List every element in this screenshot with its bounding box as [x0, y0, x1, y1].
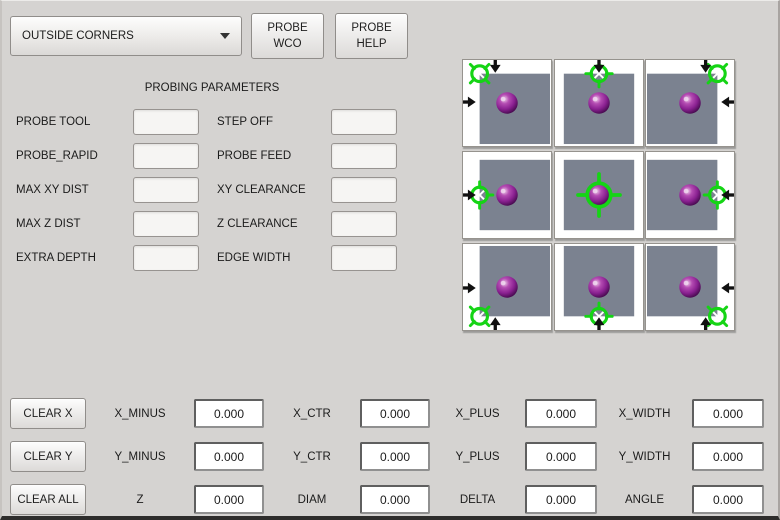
result-value-y-ctr: 0.000 — [360, 442, 430, 471]
probe-cell-bottom-left[interactable] — [462, 243, 552, 331]
param-label-edge-width: EDGE WIDTH — [199, 252, 331, 264]
result-label-delta: DELTA — [430, 494, 525, 506]
result-value-y-plus: 0.000 — [525, 442, 597, 471]
result-value-delta: 0.000 — [525, 485, 597, 514]
probe-grid — [462, 59, 738, 391]
result-label-y-ctr: Y_CTR — [264, 451, 360, 463]
results-grid: CLEAR X X_MINUS 0.000 X_CTR 0.000 X_PLUS… — [10, 398, 764, 515]
result-label-diam: DIAM — [264, 494, 360, 506]
param-label-probe-tool: PROBE TOOL — [16, 116, 133, 128]
param-label-z-clearance: Z CLEARANCE — [199, 218, 331, 230]
probe-wco-button[interactable]: PROBE WCO — [251, 13, 324, 59]
result-label-x-ctr: X_CTR — [264, 408, 360, 420]
result-label-x-plus: X_PLUS — [430, 408, 525, 420]
probe-cell-top-center[interactable] — [554, 59, 644, 147]
probe-cell-center[interactable] — [554, 151, 644, 239]
probe-help-button[interactable]: PROBE HELP — [335, 13, 408, 59]
param-label-max-xy-dist: MAX XY DIST — [16, 184, 133, 196]
param-label-max-z-dist: MAX Z DIST — [16, 218, 133, 230]
mode-select[interactable]: OUTSIDE CORNERS — [10, 16, 242, 56]
param-input-z-clearance[interactable] — [331, 211, 397, 237]
clear-x-button[interactable]: CLEAR X — [10, 398, 86, 429]
result-label-z: Z — [86, 494, 194, 506]
result-value-x-minus: 0.000 — [194, 399, 264, 428]
param-input-probe-tool[interactable] — [133, 109, 199, 135]
param-input-edge-width[interactable] — [331, 245, 397, 271]
result-label-y-minus: Y_MINUS — [86, 451, 194, 463]
param-label-probe-rapid: PROBE_RAPID — [16, 150, 133, 162]
result-value-diam: 0.000 — [360, 485, 430, 514]
result-value-x-width: 0.000 — [692, 399, 764, 428]
result-label-y-plus: Y_PLUS — [430, 451, 525, 463]
probe-cell-middle-left[interactable] — [462, 151, 552, 239]
param-input-xy-clearance[interactable] — [331, 177, 397, 203]
clear-y-button[interactable]: CLEAR Y — [10, 441, 86, 472]
clear-all-button[interactable]: CLEAR ALL — [10, 484, 86, 515]
result-value-z: 0.000 — [194, 485, 264, 514]
result-label-x-minus: X_MINUS — [86, 408, 194, 420]
param-input-probe-feed[interactable] — [331, 143, 397, 169]
result-value-y-width: 0.000 — [692, 442, 764, 471]
result-value-x-ctr: 0.000 — [360, 399, 430, 428]
probe-cell-bottom-right[interactable] — [645, 243, 735, 331]
param-input-max-xy-dist[interactable] — [133, 177, 199, 203]
param-input-step-off[interactable] — [331, 109, 397, 135]
result-label-angle: ANGLE — [597, 494, 692, 506]
param-input-extra-depth[interactable] — [133, 245, 199, 271]
probe-screen-window: OUTSIDE CORNERS PROBE WCO PROBE HELP PRO… — [0, 0, 780, 520]
params-title: PROBING PARAMETERS — [22, 82, 402, 94]
param-label-step-off: STEP OFF — [199, 116, 331, 128]
result-label-x-width: X_WIDTH — [597, 408, 692, 420]
probe-cell-middle-right[interactable] — [645, 151, 735, 239]
param-label-probe-feed: PROBE FEED — [199, 150, 331, 162]
mode-select-value: OUTSIDE CORNERS — [22, 30, 134, 42]
probe-cell-bottom-center[interactable] — [554, 243, 644, 331]
param-input-max-z-dist[interactable] — [133, 211, 199, 237]
result-value-x-plus: 0.000 — [525, 399, 597, 428]
probe-cell-top-left[interactable] — [462, 59, 552, 147]
result-value-angle: 0.000 — [692, 485, 764, 514]
param-input-probe-rapid[interactable] — [133, 143, 199, 169]
probe-cell-top-right[interactable] — [645, 59, 735, 147]
params-form: PROBE TOOL STEP OFF PROBE_RAPID PROBE FE… — [16, 109, 397, 271]
chevron-down-icon — [220, 33, 230, 39]
param-label-extra-depth: EXTRA DEPTH — [16, 252, 133, 264]
param-label-xy-clearance: XY CLEARANCE — [199, 184, 331, 196]
result-value-y-minus: 0.000 — [194, 442, 264, 471]
result-label-y-width: Y_WIDTH — [597, 451, 692, 463]
